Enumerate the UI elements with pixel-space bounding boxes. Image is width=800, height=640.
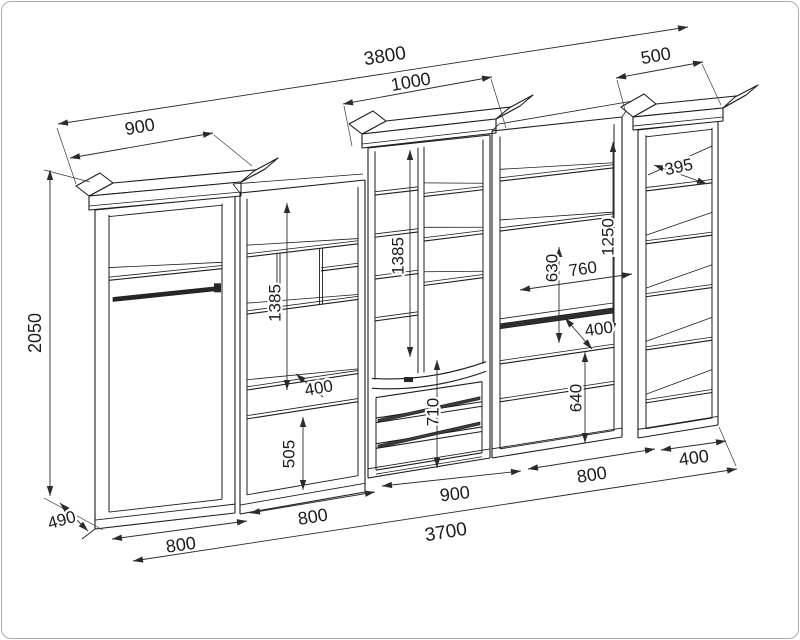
- dimension-label-tv-upper-height: 1250: [598, 218, 617, 256]
- dimension-label-wardrobe-depth: 490: [45, 507, 78, 533]
- dimension-bookcase-shelf-depth: 395: [654, 155, 707, 184]
- dimension-shelf-niche-depth: 400: [296, 374, 334, 400]
- furniture-technical-drawing: wardrobe38005001000900205049080080090080…: [0, 0, 800, 640]
- dimension-label-display-glass-height: 1385: [388, 237, 407, 275]
- dimension-label-shelf-bottom-width: 800: [296, 505, 329, 529]
- dimension-tv-lower-height: 640: [566, 352, 588, 443]
- dimension-wardrobe-top-width: 900: [70, 114, 213, 159]
- dimension-label-tv-niche-width: 760: [567, 258, 598, 281]
- dimension-wardrobe-height: 2050: [25, 170, 53, 496]
- dimension-label-wardrobe-height: 2050: [25, 313, 45, 353]
- dimension-label-display-bottom-width: 900: [439, 482, 471, 506]
- dimension-shelf-upper-height: 1385: [265, 203, 290, 390]
- dimension-bookcase-bottom-width: 400: [661, 439, 726, 470]
- dimension-label-shelf-lower-height: 505: [279, 440, 298, 468]
- dimension-display-glass-height: 1385: [388, 150, 413, 357]
- dimension-label-bookcase-bottom-width: 400: [678, 446, 711, 470]
- dimension-label-bookcase-shelf-depth: 395: [663, 155, 695, 179]
- dimension-display-bottom-width: 900: [382, 469, 521, 506]
- dimension-tv-bottom-width: 800: [528, 447, 655, 487]
- dimension-label-overall-top-width: 3800: [362, 43, 407, 70]
- dimension-shelf-lower-height: 505: [279, 417, 306, 490]
- dimension-bookcase-top-width: 500: [616, 43, 703, 79]
- dimension-tv-shelf-depth: 400: [565, 318, 614, 349]
- dimension-label-tv-lower-height: 640: [566, 384, 585, 412]
- unit-bookcase: [621, 85, 758, 438]
- dimension-label-tv-shelf-depth: 400: [583, 318, 614, 341]
- dimension-label-tv-bottom-width: 800: [575, 463, 608, 487]
- unit-wardrobe: wardrobe: [76, 158, 278, 539]
- dimension-label-wardrobe-top-width: 900: [123, 114, 156, 139]
- drawing-canvas: wardrobe38005001000900205049080080090080…: [0, 0, 800, 640]
- dimension-label-tv-niche-height: 630: [542, 254, 561, 282]
- dimension-tv-niche-width: 760: [520, 258, 632, 292]
- unit-shelf-section: [233, 174, 365, 514]
- dimension-display-top-width: 1000: [343, 68, 492, 105]
- dimension-tv-niche-height: 630: [542, 247, 562, 343]
- dimension-label-shelf-niche-depth: 400: [303, 376, 334, 400]
- dimension-label-drawers-height: 710: [423, 398, 442, 426]
- dimension-label-bookcase-top-width: 500: [639, 43, 672, 68]
- dimension-overall-bottom-width: 3700: [133, 467, 737, 562]
- dimension-label-wardrobe-bottom-width: 800: [165, 533, 198, 557]
- unit-tv-section: [492, 101, 633, 458]
- dimension-label-shelf-upper-height: 1385: [265, 284, 284, 322]
- dimension-shelf-bottom-width: 800: [250, 491, 375, 529]
- dimension-label-overall-bottom-width: 3700: [423, 519, 468, 546]
